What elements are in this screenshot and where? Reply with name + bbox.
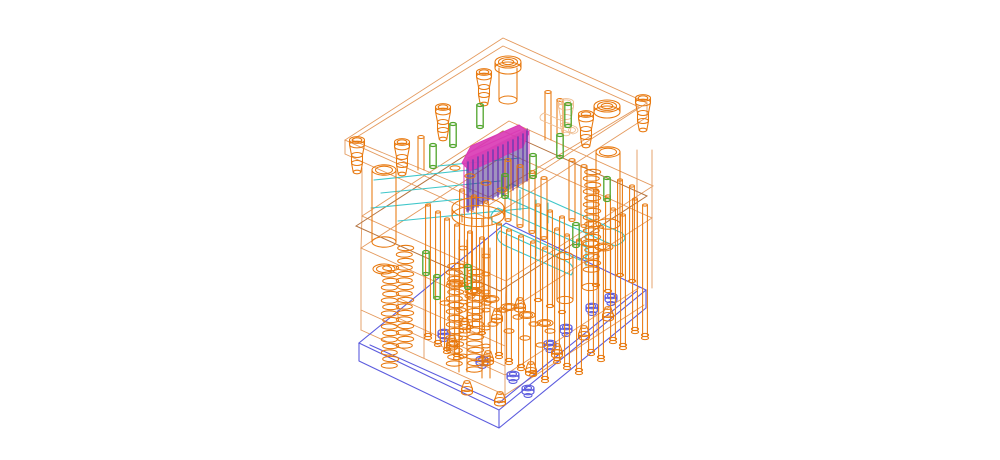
light-accessories (540, 99, 578, 136)
return-springs (381, 169, 600, 372)
mold-wireframe-view (0, 0, 1000, 460)
cad-canvas (0, 0, 1000, 460)
angled-tube (540, 113, 578, 134)
lower-face-lines (361, 287, 644, 395)
locating-ring (594, 100, 620, 118)
sprue-bushing (495, 56, 521, 104)
